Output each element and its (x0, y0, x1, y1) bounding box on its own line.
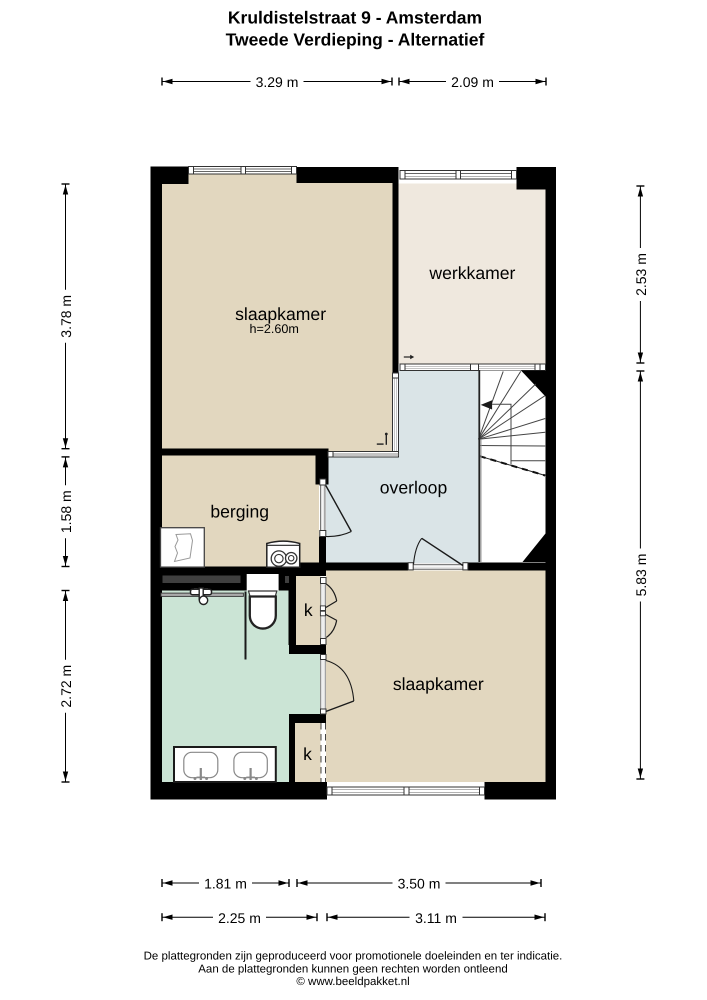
svg-text:h=2.60m: h=2.60m (250, 322, 299, 336)
svg-text:overloop: overloop (380, 478, 448, 498)
svg-text:werkkamer: werkkamer (428, 263, 515, 283)
svg-text:k: k (303, 744, 312, 764)
svg-text:De plattegronden zijn geproduc: De plattegronden zijn geproduceerd voor … (144, 951, 563, 963)
svg-text:3.78 m: 3.78 m (58, 295, 74, 338)
svg-text:© www.beeldpakket.nl: © www.beeldpakket.nl (296, 976, 409, 988)
svg-text:berging: berging (210, 501, 269, 521)
svg-text:2.25 m: 2.25 m (218, 910, 261, 926)
svg-text:slaapkamer: slaapkamer (235, 304, 326, 324)
svg-text:3.29 m: 3.29 m (256, 74, 299, 90)
svg-text:Tweede Verdieping - Alternatie: Tweede Verdieping - Alternatief (226, 30, 485, 50)
svg-text:2.53 m: 2.53 m (633, 253, 649, 296)
svg-text:k: k (304, 600, 313, 620)
svg-text:2.72 m: 2.72 m (58, 665, 74, 708)
svg-text:1.58 m: 1.58 m (58, 490, 74, 533)
svg-text:5.83 m: 5.83 m (633, 554, 649, 597)
svg-text:2.09 m: 2.09 m (451, 74, 494, 90)
svg-text:1.81 m: 1.81 m (204, 876, 247, 892)
svg-text:Kruldistelstraat 9 - Amsterdam: Kruldistelstraat 9 - Amsterdam (228, 8, 482, 28)
svg-text:Aan de plattegronden kunnen ge: Aan de plattegronden kunnen geen rechten… (198, 964, 507, 976)
svg-text:3.50 m: 3.50 m (398, 876, 441, 892)
svg-text:slaapkamer: slaapkamer (393, 674, 484, 694)
svg-text:3.11 m: 3.11 m (415, 910, 457, 926)
